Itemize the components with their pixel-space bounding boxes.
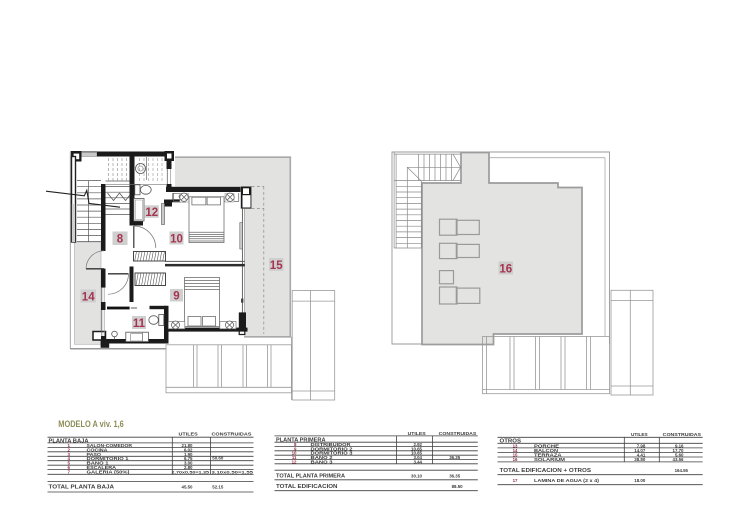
svg-text:16: 16 — [513, 457, 518, 462]
svg-text:18.00: 18.00 — [634, 478, 646, 483]
svg-text:3.10x0.50=1.55: 3.10x0.50=1.55 — [212, 470, 255, 475]
svg-text:9: 9 — [173, 291, 179, 303]
svg-text:MODELO A viv. 1,6: MODELO A viv. 1,6 — [58, 419, 124, 429]
svg-text:TOTAL PLANTA BAJA: TOTAL PLANTA BAJA — [49, 485, 115, 491]
svg-text:36.35: 36.35 — [449, 455, 461, 460]
svg-text:TOTAL PLANTA PRIMERA: TOTAL PLANTA PRIMERA — [276, 473, 345, 479]
svg-text:14: 14 — [82, 291, 95, 303]
svg-text:2.70x0.50=1.35: 2.70x0.50=1.35 — [172, 470, 211, 475]
svg-text:OTROS: OTROS — [500, 439, 522, 445]
svg-text:11: 11 — [133, 318, 146, 330]
svg-text:43.56: 43.56 — [673, 457, 685, 462]
svg-text:30.10: 30.10 — [411, 473, 423, 478]
svg-text:GALERIA (50%): GALERIA (50%) — [87, 470, 131, 475]
svg-text:CONSTRUIDAS: CONSTRUIDAS — [439, 431, 477, 436]
svg-text:3.44: 3.44 — [413, 459, 422, 464]
svg-text:LAMINA DE AGUA (2 x 4): LAMINA DE AGUA (2 x 4) — [534, 478, 600, 483]
svg-text:38.80: 38.80 — [634, 457, 646, 462]
svg-text:50.60: 50.60 — [212, 456, 224, 461]
svg-text:SOLARIUM: SOLARIUM — [534, 457, 565, 462]
svg-text:10: 10 — [170, 233, 183, 245]
svg-text:17: 17 — [513, 478, 518, 483]
svg-text:BAÑO 3: BAÑO 3 — [311, 459, 334, 464]
svg-text:UTILES: UTILES — [631, 432, 648, 437]
svg-text:45.50: 45.50 — [182, 485, 194, 490]
svg-text:88.50: 88.50 — [452, 484, 464, 489]
svg-text:8: 8 — [117, 234, 124, 246]
svg-text:TOTAL EDIFICACION + OTROS: TOTAL EDIFICACION + OTROS — [500, 468, 592, 474]
svg-text:UTILES: UTILES — [408, 431, 426, 436]
svg-text:12: 12 — [145, 207, 158, 219]
svg-text:52.15: 52.15 — [212, 485, 224, 490]
svg-text:UTILES: UTILES — [179, 431, 198, 436]
svg-text:16: 16 — [499, 263, 512, 275]
svg-text:36.35: 36.35 — [449, 473, 461, 478]
svg-text:CONSTRUIDAS: CONSTRUIDAS — [212, 431, 252, 436]
svg-text:TOTAL EDIFICACION: TOTAL EDIFICACION — [276, 484, 338, 490]
svg-text:CONSTRUIDAS: CONSTRUIDAS — [663, 432, 701, 437]
svg-text:12: 12 — [292, 459, 297, 464]
svg-text:164.55: 164.55 — [675, 468, 689, 473]
svg-text:15: 15 — [270, 260, 283, 272]
